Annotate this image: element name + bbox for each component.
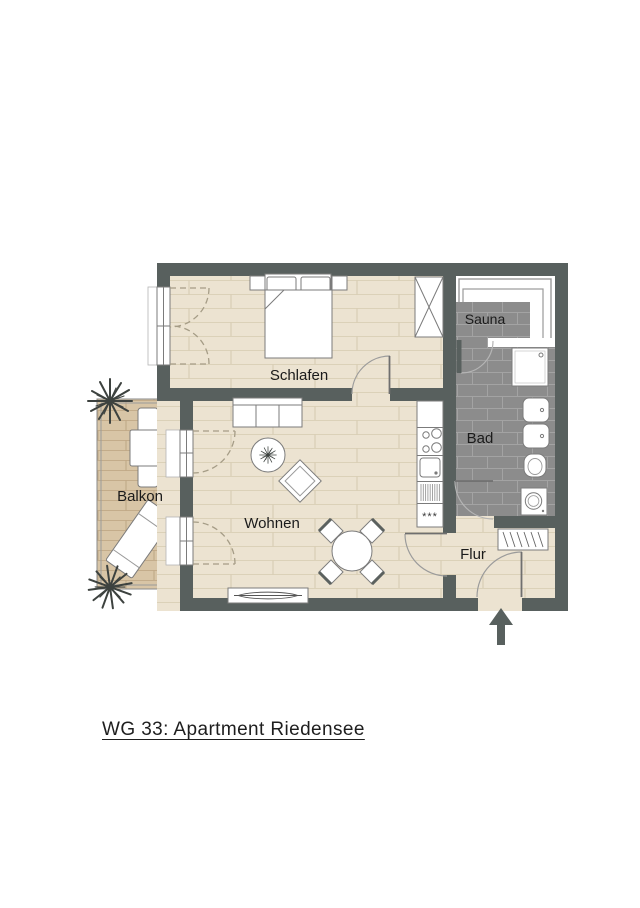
room-label-wohnen: Wohnen — [244, 515, 300, 532]
room-label-schlafen: Schlafen — [270, 367, 328, 384]
dining-table — [332, 531, 372, 571]
wall-center-vertical — [443, 575, 456, 598]
sauna-bench-base — [488, 338, 555, 347]
freezer-symbol: *** — [422, 511, 438, 523]
window-sill — [166, 517, 180, 565]
wall-bath-hall — [494, 516, 555, 528]
toilet — [524, 454, 546, 477]
balcony-chair — [138, 408, 158, 433]
room-label-bad: Bad — [467, 430, 494, 447]
wall-top — [157, 263, 568, 276]
bed-duvet — [265, 290, 332, 358]
wall-right — [555, 263, 568, 611]
entrance-arrow-icon — [489, 608, 513, 645]
kitchenette: *** — [417, 401, 443, 527]
wall-living-left — [180, 388, 193, 611]
room-label-flur: Flur — [460, 546, 486, 563]
window-sill — [148, 287, 157, 365]
sofa — [233, 398, 302, 427]
floorplan-canvas: *** — [0, 0, 640, 908]
nightstand — [250, 276, 265, 290]
sauna-door-leaf — [457, 340, 462, 373]
entrance-threshold — [478, 598, 522, 611]
room-label-balkon: Balkon — [117, 488, 163, 505]
sink-drain — [434, 471, 437, 474]
floorplan-page: *** — [0, 0, 640, 908]
plan-title: WG 33: Apartment Riedensee — [102, 719, 365, 741]
bathroom-sink — [523, 398, 549, 422]
window-sill — [166, 430, 180, 477]
nightstand — [332, 276, 347, 290]
bathroom-sink — [523, 424, 549, 448]
wall-center-vertical — [443, 276, 456, 533]
wall-bedroom-bottom — [390, 388, 443, 401]
room-label-sauna: Sauna — [465, 311, 506, 327]
